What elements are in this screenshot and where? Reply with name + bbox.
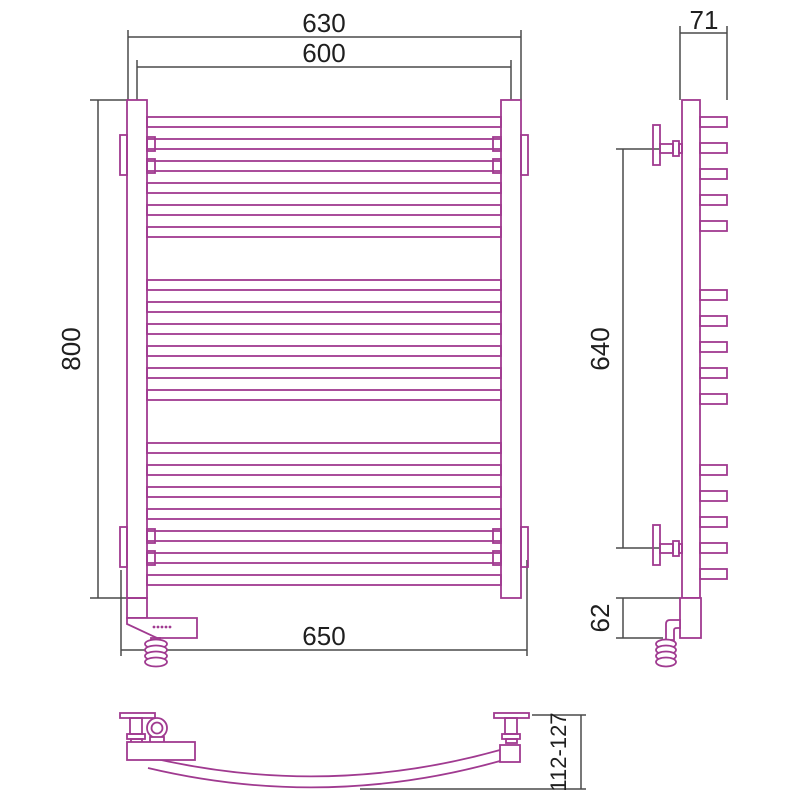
bracket-stem [505,718,517,734]
bracket-arm [660,144,673,153]
dim-label-650: 650 [302,621,345,651]
dim-label-800: 800 [56,327,86,370]
rung-end [700,394,727,404]
dim-label-112-127: 112-127 [546,712,571,791]
bracket-collar [673,541,679,556]
side-rung-ends [700,117,727,579]
rung [147,509,501,519]
dim-label-71: 71 [690,5,719,35]
rung-end [700,342,727,352]
bracket-collar [673,141,679,156]
post-stub [127,598,147,618]
plan-view: 112-127 [120,712,586,791]
rung [147,531,501,541]
rung [147,487,501,497]
rung-end [700,465,727,475]
rung-end [700,491,727,501]
plan-round-fitting [147,718,167,743]
rung-end [700,316,727,326]
rung [147,139,501,149]
bracket-nub [679,144,682,153]
rung [147,575,501,585]
bracket-arm [660,544,673,553]
rung-end [700,517,727,527]
plan-right-bracket [494,713,529,743]
heater-box-side [680,598,701,638]
coiled-cable-side [656,640,676,667]
wall-brackets [120,135,528,567]
rung [147,205,501,215]
elbow-fitting [666,620,680,640]
rung [147,465,501,475]
post-block-plan [500,745,520,762]
bracket-nub [679,544,682,553]
dim-label-600: 600 [302,38,345,68]
rung-end [700,195,727,205]
arc-top-edge [148,750,500,776]
side-bracket-top [653,125,682,165]
left-post [127,100,147,598]
rung-end [700,143,727,153]
rung [147,553,501,563]
rung-end [700,569,727,579]
plan-dimensions: 112-127 [360,712,586,791]
rung [147,346,501,356]
rung-end [700,368,727,378]
bracket-bar [120,135,127,175]
rung [147,161,501,171]
bracket-plate [653,125,660,165]
rung-end [700,290,727,300]
side-profile [653,100,727,667]
rung-end [700,169,727,179]
dim-label-62: 62 [585,604,615,633]
side-view: 71 640 62 [585,5,727,667]
bracket-bar [120,527,127,567]
dim-label-630: 630 [302,8,345,38]
rung-end [700,117,727,127]
heater-unit-front [127,598,197,667]
rung-end [700,543,727,553]
bracket-plate [653,525,660,565]
rung [147,280,501,290]
front-rail-outline [120,100,528,667]
bracket-base [506,739,517,743]
plan-outline [120,713,529,787]
heater-box-plan [127,742,195,760]
heater-unit-side [656,598,701,667]
rung-group-top [147,117,501,237]
bracket-stem [130,718,142,734]
rung [147,390,501,400]
curved-rung-arc [148,750,500,787]
rung [147,302,501,312]
rung-group-bottom [147,443,501,585]
right-post [501,100,521,598]
arc-bottom-edge [148,761,500,787]
dim-label-640: 640 [585,327,615,370]
rung [147,183,501,193]
front-view: 630 600 800 650 [56,8,528,667]
side-bracket-bottom [653,525,682,565]
rung [147,117,501,127]
rung-end [700,221,727,231]
rung [147,368,501,378]
rung [147,324,501,334]
post-profile [682,100,700,598]
coiled-cable-front [145,640,167,667]
technical-drawing: 630 600 800 650 [0,0,800,800]
rung-group-middle [147,280,501,400]
fitting-outer-ring [147,718,167,738]
rung [147,227,501,237]
rung [147,443,501,453]
bracket-bar [521,135,528,175]
